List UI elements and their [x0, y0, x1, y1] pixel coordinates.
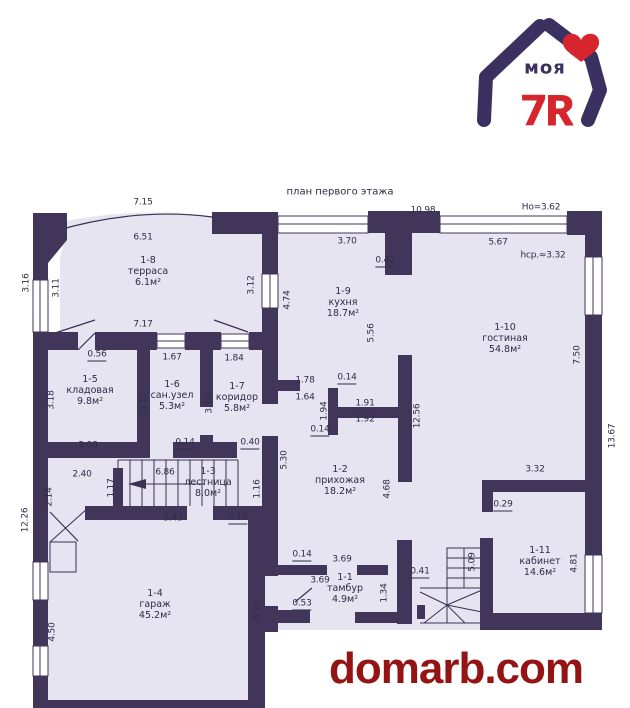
logo-house-icon [452, 10, 627, 160]
brand-logo: моя 7Я [452, 10, 627, 160]
logo-digit: 7 [519, 87, 546, 136]
watermark-banner: domarb.com [282, 630, 630, 708]
logo-letter: Я [546, 87, 576, 136]
logo-word: моя [524, 58, 566, 79]
watermark-text: domarb.com [329, 644, 583, 694]
floor-plan-page: план первого этажа 7.1510.98Но=3.626.513… [0, 0, 630, 708]
logo-number: 7Я [519, 87, 577, 136]
